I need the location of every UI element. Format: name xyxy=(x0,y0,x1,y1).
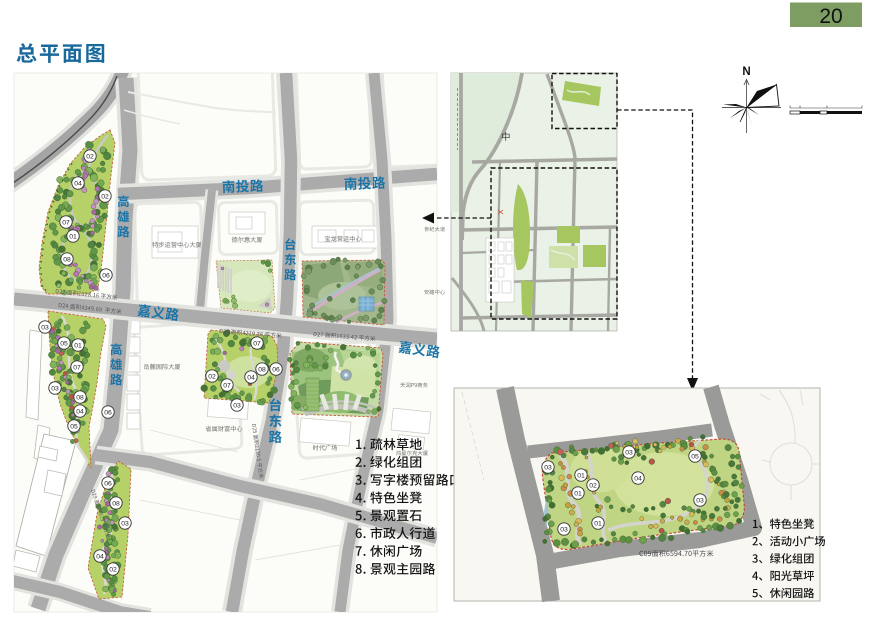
svg-text:06: 06 xyxy=(102,272,110,279)
svg-text:04: 04 xyxy=(96,553,104,560)
svg-text:04: 04 xyxy=(76,408,84,415)
svg-text:07: 07 xyxy=(73,364,81,371)
svg-text:08: 08 xyxy=(76,394,84,401)
svg-text:N: N xyxy=(742,66,750,78)
svg-text:05: 05 xyxy=(691,453,699,460)
svg-text:01: 01 xyxy=(574,490,582,497)
svg-text:02: 02 xyxy=(101,193,109,200)
svg-text:03: 03 xyxy=(121,520,129,527)
svg-text:08: 08 xyxy=(112,500,120,507)
svg-text:03: 03 xyxy=(233,402,241,409)
svg-text:04: 04 xyxy=(247,374,255,381)
svg-text:02: 02 xyxy=(86,153,94,160)
svg-text:07: 07 xyxy=(253,340,261,347)
svg-text:20: 20 xyxy=(819,5,842,28)
svg-text:03: 03 xyxy=(544,464,552,471)
svg-text:03: 03 xyxy=(625,449,633,456)
svg-text:01: 01 xyxy=(594,520,602,527)
svg-text:02: 02 xyxy=(208,373,216,380)
svg-text:06: 06 xyxy=(104,409,112,416)
svg-text:08: 08 xyxy=(63,256,71,263)
svg-text:06: 06 xyxy=(104,480,112,487)
svg-text:07: 07 xyxy=(223,382,231,389)
svg-text:05: 05 xyxy=(60,340,68,347)
svg-text:04: 04 xyxy=(74,180,82,187)
svg-text:06: 06 xyxy=(272,366,280,373)
svg-text:07: 07 xyxy=(62,219,70,226)
svg-text:03: 03 xyxy=(41,324,49,331)
svg-text:05: 05 xyxy=(70,423,78,430)
svg-text:03: 03 xyxy=(560,526,568,533)
svg-text:01: 01 xyxy=(69,233,77,240)
svg-text:08: 08 xyxy=(258,366,266,373)
svg-text:02: 02 xyxy=(589,482,597,489)
svg-text:04: 04 xyxy=(634,475,642,482)
svg-text:03: 03 xyxy=(696,497,704,504)
svg-text:03: 03 xyxy=(51,385,59,392)
svg-text:02: 02 xyxy=(109,566,117,573)
svg-text:01: 01 xyxy=(577,472,585,479)
svg-text:01: 01 xyxy=(74,342,82,349)
